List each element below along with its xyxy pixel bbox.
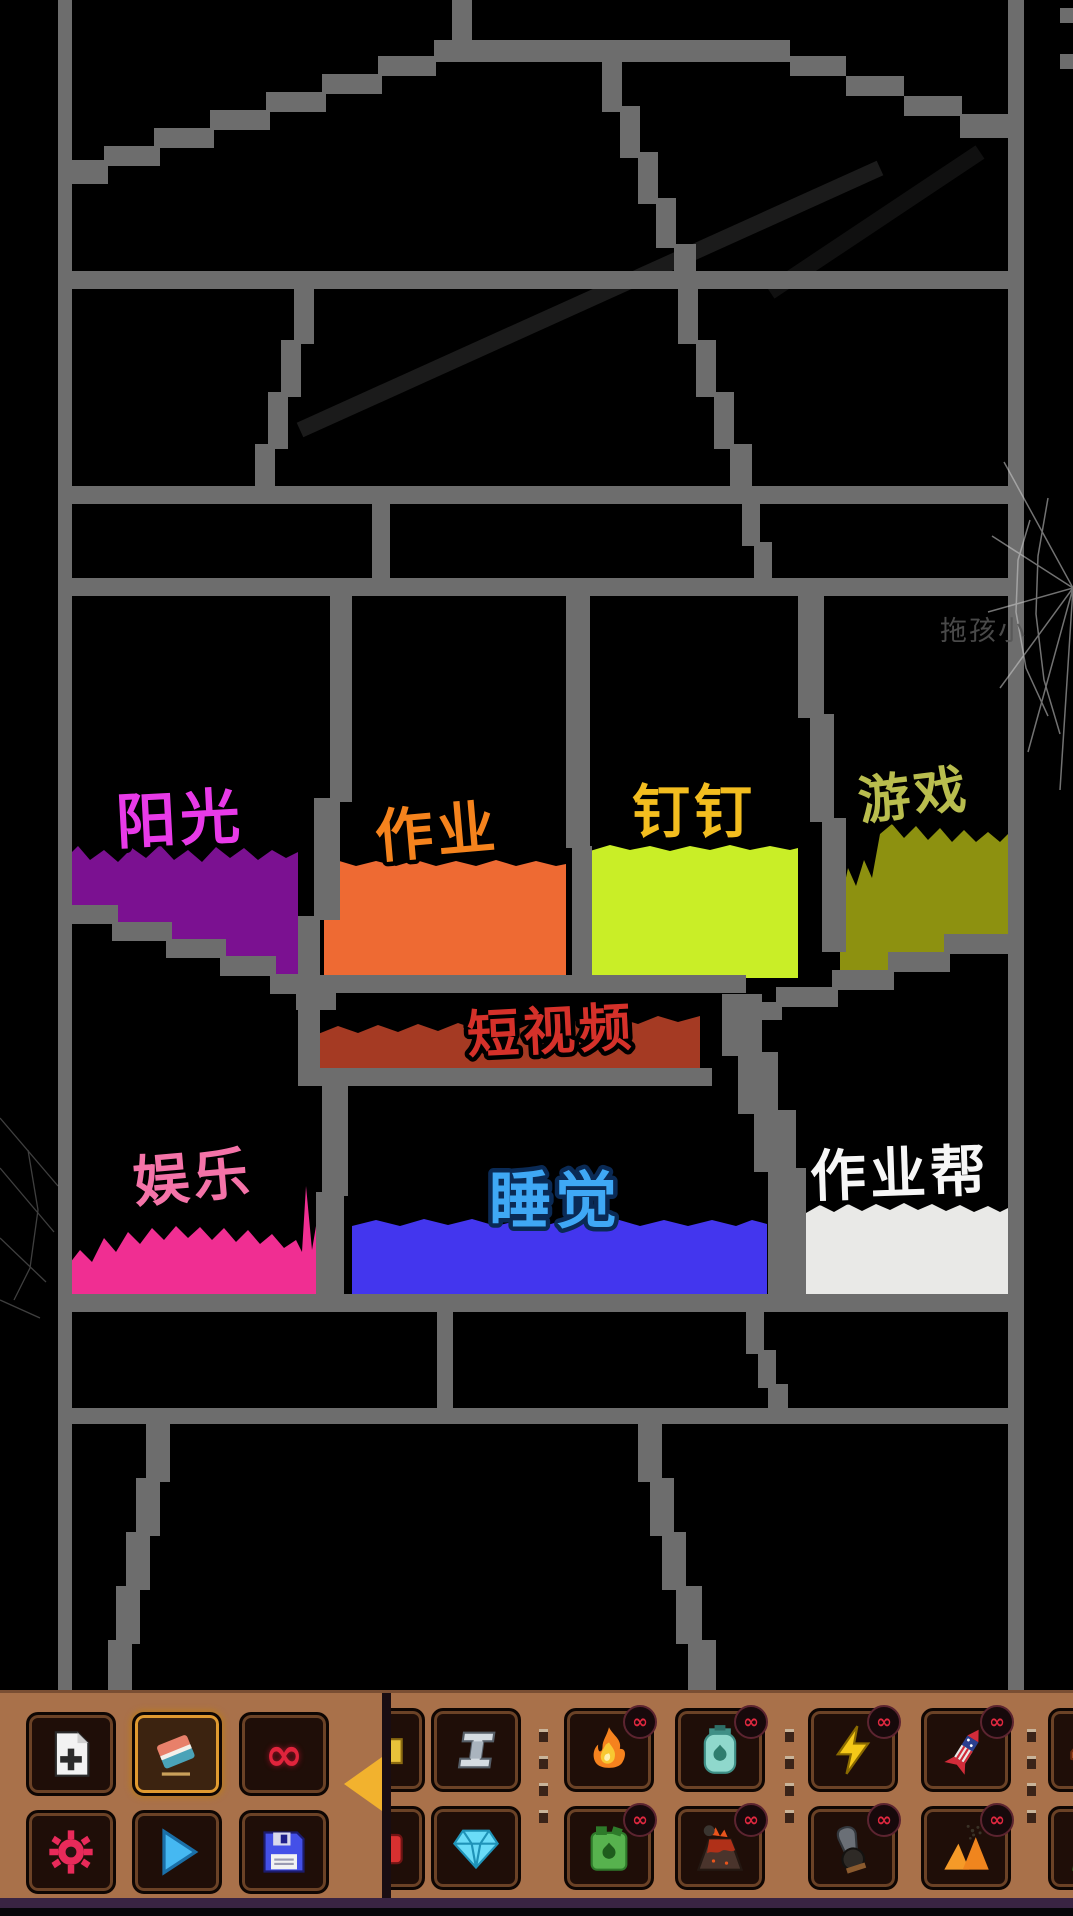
toolbar: ∞ [0,1690,1073,1913]
element-gas-tank[interactable]: ∞ [675,1708,765,1792]
element-lightning[interactable]: ∞ [808,1708,898,1792]
pool-dingtalk[interactable] [590,845,798,978]
element-sand-eruption[interactable]: ∞ [921,1806,1011,1890]
infinity-mode-button[interactable]: ∞ [239,1712,329,1796]
new-file-icon [45,1728,97,1780]
element-volcano[interactable]: ∞ [675,1806,765,1890]
new-file-button[interactable] [26,1712,116,1796]
play-button[interactable] [132,1810,222,1894]
infinity-badge: ∞ [867,1705,901,1739]
infinity-badge: ∞ [734,1803,768,1837]
gear-icon [45,1826,97,1878]
label-short-video: 短视频 [466,998,637,1067]
toolbar-bottom-strip [0,1898,1073,1908]
pool-homework[interactable] [324,860,566,978]
toolbar-bottom-edge [0,1908,1073,1916]
label-homework: 作业 [372,793,501,872]
label-dingtalk: 钉钉 [632,778,756,846]
element-partial-left-top[interactable] [391,1708,425,1792]
element-partial-left-bottom[interactable] [391,1806,425,1890]
infinity-badge: ∞ [980,1705,1014,1739]
element-cannon[interactable]: ∞ [808,1806,898,1890]
save-button[interactable] [239,1810,329,1894]
panel-separator [785,1715,795,1885]
panel-divider [382,1693,391,1898]
infinity-badge: ∞ [734,1705,768,1739]
label-entertainment: 娱乐 [131,1141,256,1216]
panel-separator [539,1715,549,1885]
element-diamond[interactable] [431,1806,521,1890]
infinity-badge: ∞ [980,1803,1014,1837]
element-panel[interactable]: ∞ ∞ ∞ [391,1693,1073,1898]
save-icon [258,1826,310,1878]
panel-separator [1027,1715,1037,1885]
play-icon [151,1826,203,1878]
element-fire[interactable]: ∞ [564,1708,654,1792]
partial-icon [1067,1822,1073,1874]
partial-icon [391,1724,406,1776]
eraser-icon [151,1728,203,1780]
element-partial-right-bottom[interactable] [1048,1806,1073,1890]
element-fuel-can[interactable]: ∞ [564,1806,654,1890]
watermark-text: 拖孩小 [940,616,1027,647]
settings-button[interactable] [26,1810,116,1894]
label-sleep: 睡觉 [489,1164,621,1237]
eraser-button[interactable] [132,1712,222,1796]
element-steel[interactable] [431,1708,521,1792]
infinity-badge: ∞ [623,1803,657,1837]
game-scene[interactable]: 阳光 作业 钉钉 游戏 短视频 娱乐 睡觉 作业帮 拖孩小 [0,0,1073,1690]
collapse-panel-arrow[interactable] [344,1757,382,1811]
infinity-badge: ∞ [623,1705,657,1739]
label-sunshine: 阳光 [114,782,245,859]
infinity-badge: ∞ [867,1803,901,1837]
element-firework[interactable]: ∞ [921,1708,1011,1792]
partial-icon [1067,1724,1073,1776]
steel-beam-icon [450,1724,502,1776]
element-partial-right-top[interactable]: ∞ [1048,1708,1073,1792]
partial-icon [391,1822,406,1874]
pool-homework-help[interactable] [806,1203,1008,1296]
infinity-icon: ∞ [265,1731,303,1777]
diamond-icon [450,1822,502,1874]
label-homework-help: 作业帮 [809,1139,991,1210]
